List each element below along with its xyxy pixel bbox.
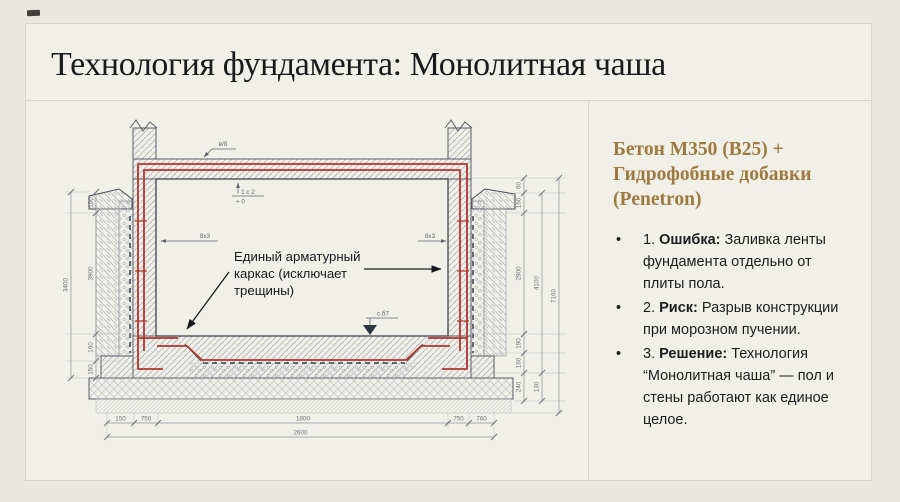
svg-text:2600: 2600 bbox=[293, 430, 308, 437]
base-pad bbox=[89, 378, 513, 399]
svg-text:160: 160 bbox=[88, 342, 95, 353]
rebar-left-label: 8х3 bbox=[200, 233, 211, 240]
level-top-label: 1 с 2 bbox=[241, 189, 255, 196]
key-points-list: • 1. Ошибка: Заливка ленты фундамента от… bbox=[613, 229, 845, 431]
bullet-icon: • bbox=[616, 297, 621, 319]
bullet-icon: • bbox=[616, 343, 621, 365]
drainage-layer-right bbox=[471, 201, 484, 356]
footing-right bbox=[471, 356, 494, 378]
svg-text:трещины): трещины) bbox=[234, 283, 294, 298]
svg-text:190: 190 bbox=[516, 338, 523, 349]
underfloor-bed bbox=[190, 363, 418, 378]
bullet-icon: • bbox=[616, 229, 621, 251]
foundation-drawing-panel: 150 750 1800 750 760 2600 100 3900 160 1… bbox=[26, 101, 589, 480]
wall-stub-left bbox=[133, 128, 156, 159]
svg-text:3900: 3900 bbox=[88, 266, 95, 281]
top-slab bbox=[133, 159, 471, 179]
subsoil-band bbox=[96, 399, 511, 413]
list-item-risk: • 2. Риск: Разрыв конструкции при морозн… bbox=[613, 297, 845, 341]
svg-text:130: 130 bbox=[534, 381, 541, 392]
svg-text:160: 160 bbox=[516, 357, 523, 368]
footing-left bbox=[101, 356, 133, 378]
floor-level-label: с.б7 bbox=[377, 310, 390, 318]
svg-text:1800: 1800 bbox=[296, 416, 311, 423]
svg-text:760: 760 bbox=[476, 416, 487, 423]
svg-text:60: 60 bbox=[516, 182, 523, 190]
svg-text:2900: 2900 bbox=[516, 266, 523, 281]
svg-text:100: 100 bbox=[88, 197, 95, 208]
corner-mark bbox=[27, 10, 40, 16]
level-zero-label: + 0 bbox=[236, 199, 245, 206]
list-item-solution: • 3. Решение: Технология “Монолитная чаш… bbox=[613, 343, 845, 431]
svg-text:240: 240 bbox=[516, 381, 523, 392]
foundation-section-drawing: 150 750 1800 750 760 2600 100 3900 160 1… bbox=[26, 101, 589, 483]
svg-text:150: 150 bbox=[88, 364, 95, 375]
drainage-layer-left bbox=[119, 201, 133, 356]
slide-header: Технология фундамента: Монолитная чаша bbox=[26, 24, 871, 101]
svg-text:каркас (исключает: каркас (исключает bbox=[234, 266, 347, 281]
slide-card: Технология фундамента: Монолитная чаша bbox=[25, 23, 872, 481]
svg-text:4100: 4100 bbox=[534, 276, 541, 291]
info-panel: Бетон М350 (В25) + Гидрофобные добавки (… bbox=[589, 101, 871, 480]
svg-text:750: 750 bbox=[453, 416, 464, 423]
svg-text:150: 150 bbox=[115, 416, 126, 423]
svg-text:Единый арматурный: Единый арматурный bbox=[234, 249, 361, 264]
wall-stub-right bbox=[448, 128, 471, 159]
page-title: Технология фундамента: Монолитная чаша bbox=[51, 46, 666, 84]
top-section-leader-arrow bbox=[204, 149, 236, 157]
svg-text:160: 160 bbox=[516, 197, 523, 208]
list-item-error: • 1. Ошибка: Заливка ленты фундамента от… bbox=[613, 229, 845, 295]
slide-body: 150 750 1800 750 760 2600 100 3900 160 1… bbox=[26, 101, 871, 480]
svg-text:3400: 3400 bbox=[63, 278, 70, 293]
svg-text:750: 750 bbox=[141, 416, 152, 423]
svg-text:7160: 7160 bbox=[551, 289, 558, 304]
material-heading: Бетон М350 (В25) + Гидрофобные добавки (… bbox=[613, 137, 845, 212]
top-section-label: в/б bbox=[219, 140, 228, 148]
rebar-right-label: 8х3 bbox=[425, 233, 436, 240]
